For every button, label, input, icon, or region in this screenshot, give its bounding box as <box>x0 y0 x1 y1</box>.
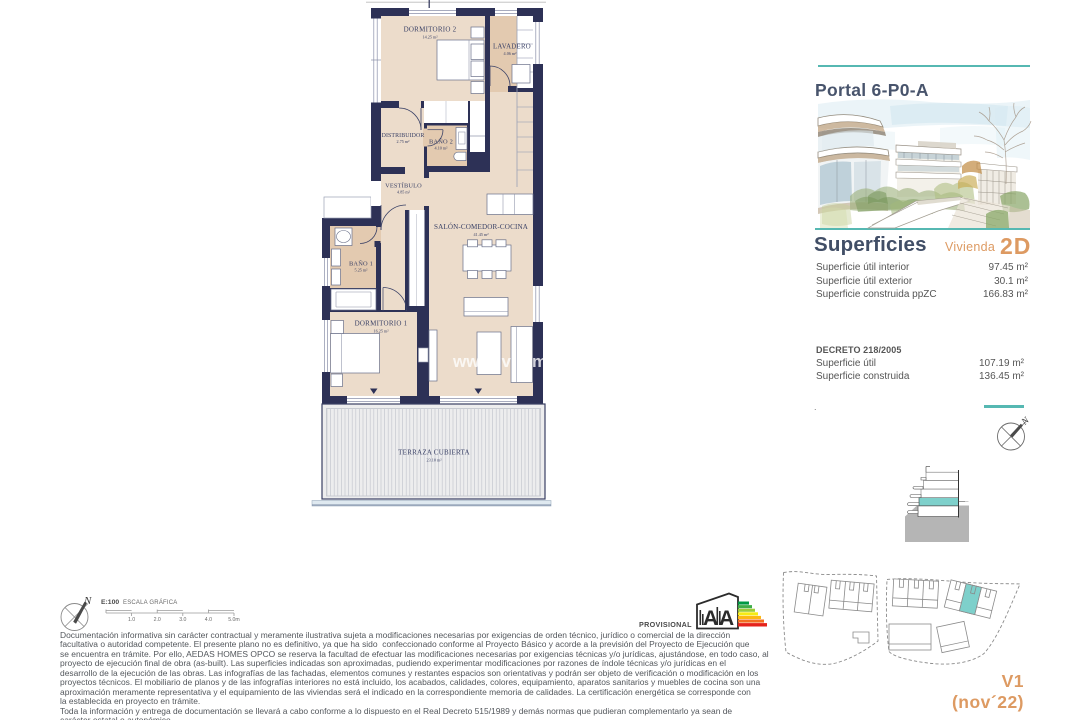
svg-text:16.25 m²: 16.25 m² <box>374 329 390 334</box>
svg-text:A: A <box>703 607 718 630</box>
svg-text:41.45 m²: 41.45 m² <box>474 232 490 237</box>
svg-text:4.06 m²: 4.06 m² <box>504 51 518 56</box>
svg-text:N: N <box>83 595 92 607</box>
svg-text:2.0: 2.0 <box>154 617 161 623</box>
svg-text:14.25 m²: 14.25 m² <box>423 35 439 40</box>
svg-text:1.0: 1.0 <box>128 617 135 623</box>
svg-text:VESTÍBULO: VESTÍBULO <box>385 182 422 190</box>
svg-text:2.75 m²: 2.75 m² <box>397 139 411 144</box>
svg-text:BAÑO 1: BAÑO 1 <box>349 260 373 268</box>
svg-text:SALÓN-COMEDOR-COCINA: SALÓN-COMEDOR-COCINA <box>434 223 529 231</box>
svg-text:mo: mo <box>532 352 558 371</box>
svg-text:4.10 m²: 4.10 m² <box>435 146 449 151</box>
svg-text:5.25 m²: 5.25 m² <box>355 268 369 273</box>
svg-text:23.10 m²: 23.10 m² <box>427 458 443 463</box>
svg-text:3.0: 3.0 <box>179 617 186 623</box>
svg-text:DORMITORIO 2: DORMITORIO 2 <box>404 26 457 34</box>
svg-text:4.85 m²: 4.85 m² <box>397 190 411 195</box>
svg-text:4.0: 4.0 <box>205 617 212 623</box>
svg-text:A: A <box>719 607 734 630</box>
svg-text:BAÑO 2: BAÑO 2 <box>429 138 453 146</box>
svg-text:TERRAZA CUBIERTA: TERRAZA CUBIERTA <box>398 449 470 457</box>
svg-text:DORMITORIO 1: DORMITORIO 1 <box>355 320 408 328</box>
svg-text:www.iv: www.iv <box>452 352 511 371</box>
svg-text:5.0m: 5.0m <box>228 617 240 623</box>
svg-text:LAVADERO: LAVADERO <box>493 44 531 51</box>
